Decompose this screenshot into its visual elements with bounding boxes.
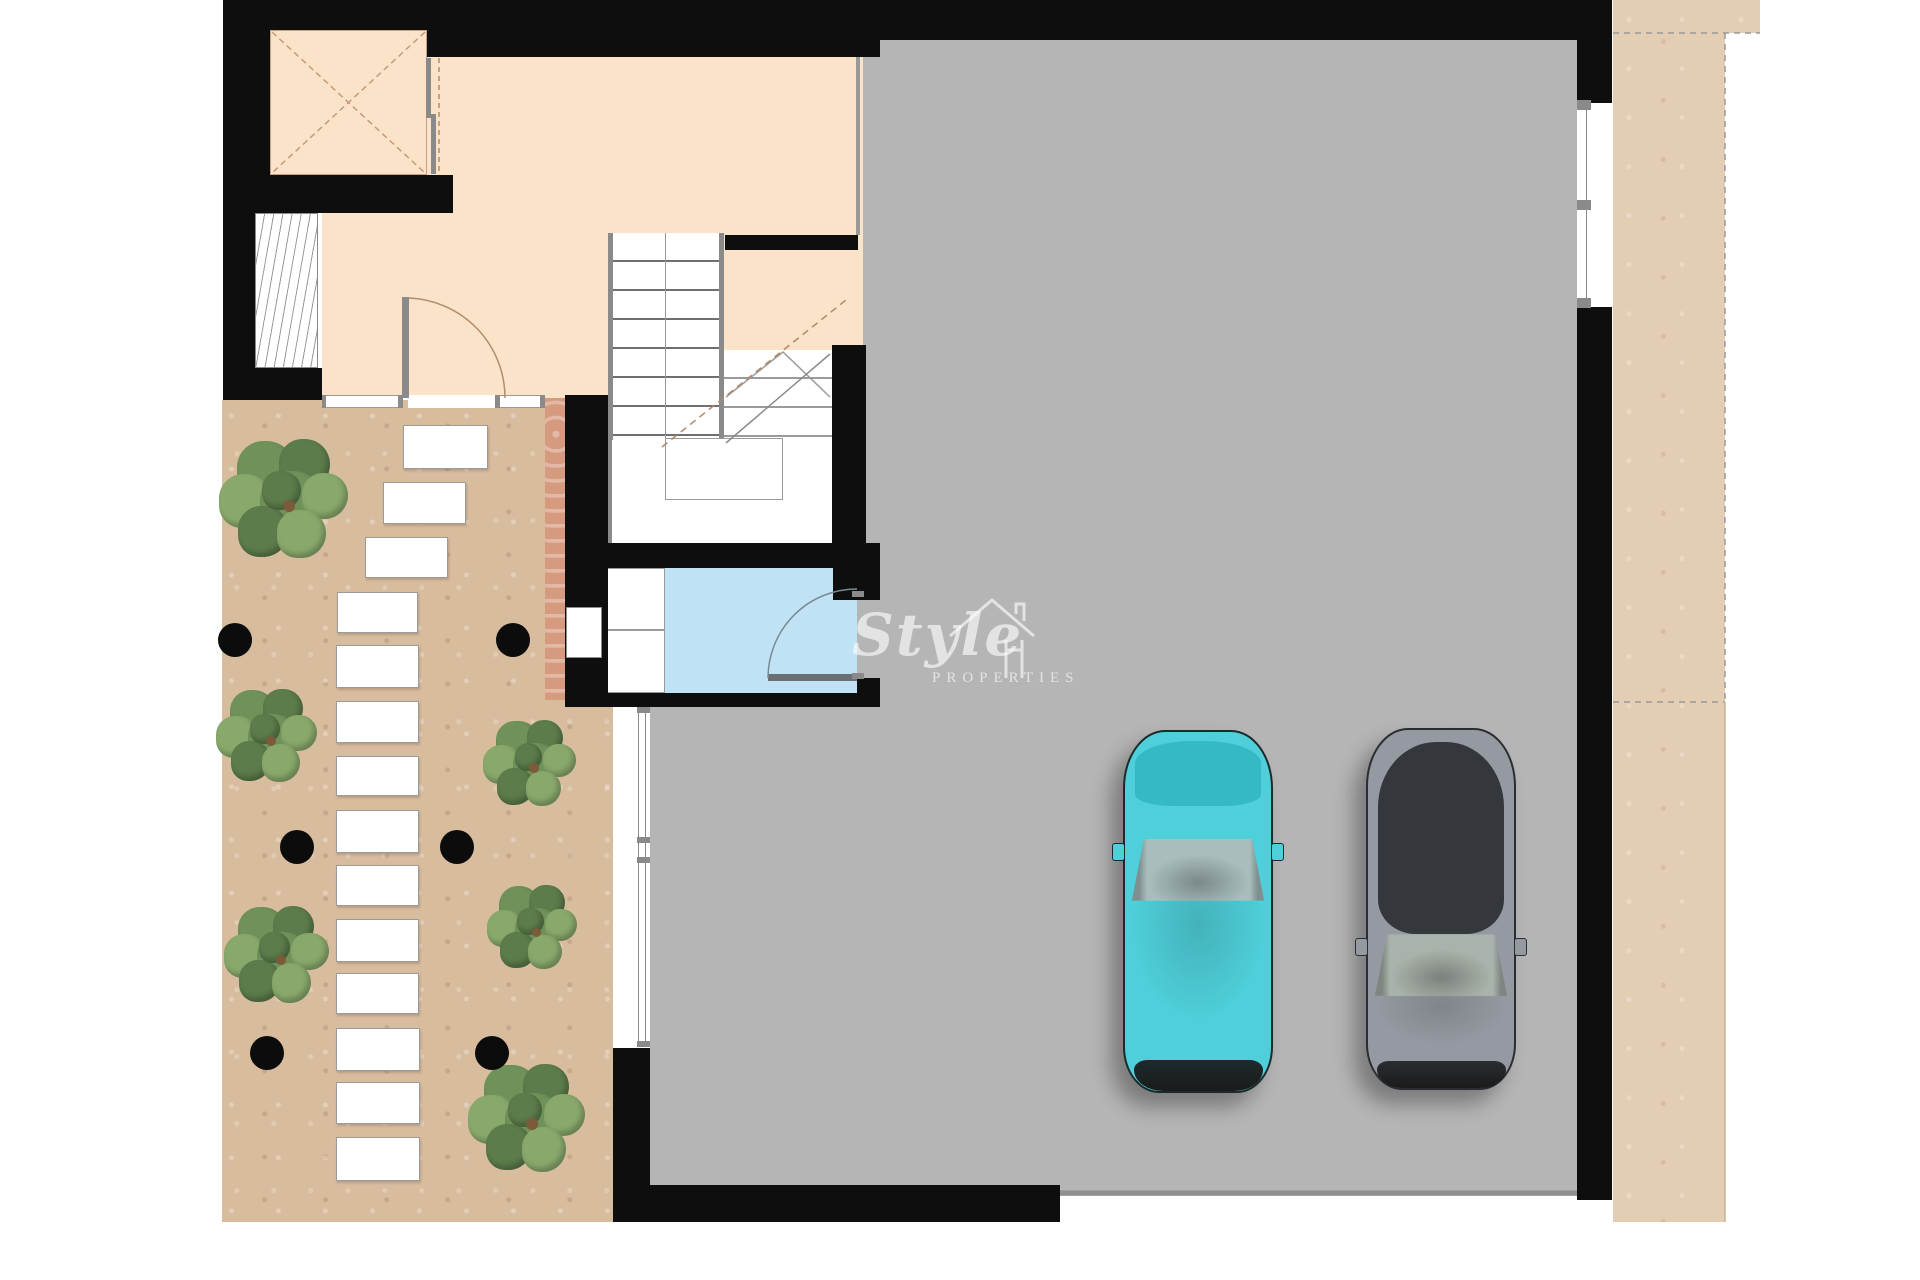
car-front-bumper — [1134, 1060, 1263, 1091]
car-windshield — [1374, 934, 1509, 996]
car-mirror-right — [1514, 938, 1527, 956]
car-windshield — [1131, 839, 1266, 901]
car-hood — [1375, 996, 1507, 1061]
car-gray — [1366, 728, 1516, 1090]
watermark-brand-text: Style — [852, 606, 1023, 664]
car-roof-glass — [1378, 742, 1504, 934]
car-front-bumper — [1377, 1061, 1506, 1088]
car-mirror-right — [1271, 843, 1284, 861]
car-mirror-left — [1355, 938, 1368, 956]
watermark-subtitle-text: PROPERTIES — [932, 670, 1079, 687]
car-hood — [1132, 901, 1264, 1057]
car-mirror-left — [1112, 843, 1125, 861]
car-teal — [1123, 730, 1273, 1093]
floor-plan: Style PROPERTIES — [0, 0, 1920, 1280]
car-roof-glass — [1135, 741, 1261, 806]
brand-watermark: Style PROPERTIES — [852, 568, 1112, 708]
